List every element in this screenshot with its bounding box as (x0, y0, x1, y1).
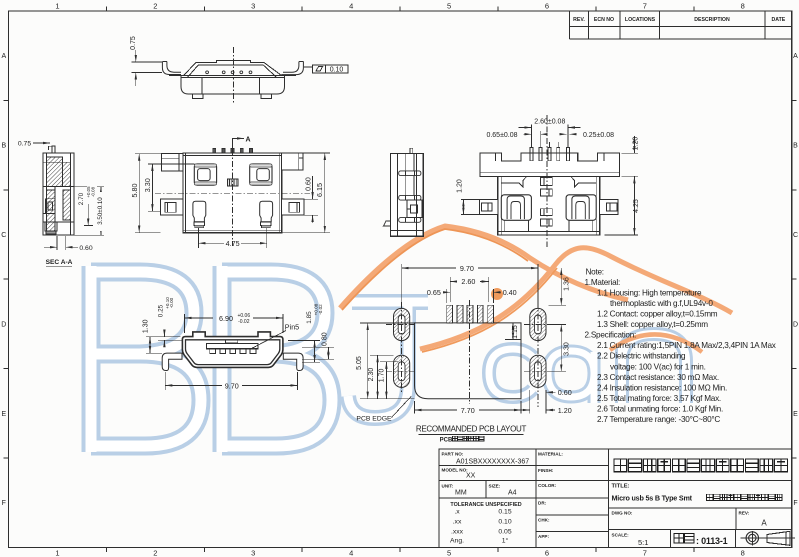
svg-text:FINSH:: FINSH: (538, 468, 554, 473)
svg-text:1.20: 1.20 (633, 137, 640, 151)
svg-text:A: A (245, 136, 250, 143)
svg-text:E: E (793, 411, 798, 418)
svg-text:1.Material:: 1.Material: (585, 278, 620, 287)
svg-text:CHK:: CHK: (538, 518, 550, 523)
svg-text:ECN NO: ECN NO (594, 17, 614, 23)
svg-text:DATE: DATE (772, 17, 786, 23)
svg-text:0.60: 0.60 (558, 388, 572, 397)
svg-text:8: 8 (741, 1, 745, 10)
svg-text:1.1 Housing: High temperatu: 1.1 Housing: High temperature (597, 288, 702, 297)
svg-text:0.25: 0.25 (157, 304, 164, 317)
svg-text:0.05: 0.05 (498, 529, 511, 536)
svg-text:6: 6 (545, 549, 549, 557)
svg-text:0.65±0.08: 0.65±0.08 (486, 132, 517, 139)
svg-text:RECOMMANDED PCB LAYOUT: RECOMMANDED PCB LAYOUT (416, 425, 527, 434)
svg-text:Note:: Note: (586, 267, 604, 276)
svg-text:0.75: 0.75 (18, 140, 31, 147)
svg-text:-0.08: -0.08 (90, 186, 95, 197)
svg-text:MODEL NO:: MODEL NO: (442, 468, 469, 473)
svg-text:voltage: 100 V(ac) for 1: voltage: 100 V(ac) for 1 min. (610, 362, 706, 371)
svg-text:7.70: 7.70 (461, 406, 475, 415)
svg-text:DESCRIPTION: DESCRIPTION (694, 17, 730, 23)
svg-text:DR:: DR: (538, 501, 547, 506)
svg-text:3: 3 (251, 549, 255, 557)
svg-text:6.90: 6.90 (219, 314, 233, 323)
svg-text:1.2 Contact: copper alloy,t: 1.2 Contact: copper alloy,t=0.15mm (597, 310, 718, 319)
svg-text:7: 7 (643, 1, 647, 10)
svg-text:2.6 Total unmating force:: 2.6 Total unmating force: 1.0 Kgf Min. (597, 404, 723, 413)
svg-text:5: 5 (447, 549, 451, 557)
svg-text:0.40: 0.40 (503, 288, 517, 297)
svg-text:A01SBXXXXXXXX-367: A01SBXXXXXXXX-367 (456, 458, 529, 465)
svg-text:B: B (793, 143, 798, 150)
svg-text:0.60: 0.60 (305, 177, 312, 191)
svg-text:A: A (1, 53, 6, 60)
svg-text:4.25: 4.25 (633, 199, 640, 213)
svg-text:: 0113-1: : 0113-1 (696, 536, 728, 546)
svg-text:2.4 Insulation resistance:: 2.4 Insulation resistance: 100 MΩ Min. (597, 383, 727, 392)
svg-text:9.70: 9.70 (460, 264, 474, 273)
svg-text:E: E (1, 411, 6, 418)
svg-text:2.7 Temperature range: -30°: 2.7 Temperature range: -30°C~80°C (597, 415, 720, 424)
svg-text:3.30: 3.30 (143, 178, 152, 192)
svg-text:TOLERANCE UNSPECIFIED: TOLERANCE UNSPECIFIED (450, 502, 521, 508)
svg-text:1°: 1° (502, 537, 509, 545)
svg-text:1.20: 1.20 (456, 179, 463, 193)
svg-text:.x: .x (454, 509, 460, 516)
svg-text:1.30: 1.30 (143, 319, 150, 333)
svg-text:SCALE:: SCALE: (612, 533, 630, 538)
svg-text:1.3 Shell: copper alloy,t=0: 1.3 Shell: copper alloy,t=0.25mm (597, 320, 708, 329)
svg-text:4: 4 (349, 549, 353, 557)
svg-text:D: D (1, 321, 6, 328)
svg-text:D: D (793, 321, 798, 328)
svg-text:REV.: REV. (573, 17, 585, 23)
svg-text:2.1 Current rating:1,5PIN 1: 2.1 Current rating:1,5PIN 1.8A Max/2,3,4… (597, 341, 776, 350)
svg-text:-0.02: -0.02 (318, 304, 323, 315)
svg-text:5.80: 5.80 (130, 184, 139, 198)
svg-text:1.20: 1.20 (558, 406, 572, 415)
svg-text:8: 8 (741, 549, 745, 557)
svg-text:3: 3 (251, 1, 255, 10)
svg-text:2.60±0.08: 2.60±0.08 (534, 118, 565, 125)
svg-text:Pin5: Pin5 (285, 322, 299, 331)
svg-text:5: 5 (447, 1, 451, 10)
svg-text:4.75: 4.75 (226, 239, 240, 248)
svg-text:1.85: 1.85 (306, 311, 313, 324)
svg-text:C: C (1, 232, 6, 239)
svg-text:PART NO:: PART NO: (442, 452, 464, 457)
svg-text:0.10: 0.10 (498, 519, 511, 526)
svg-text:C: C (793, 232, 798, 239)
svg-text:3.30: 3.30 (564, 342, 571, 356)
svg-text:1.70: 1.70 (379, 368, 386, 382)
svg-text:-0.02: -0.02 (238, 319, 250, 325)
svg-text:0.75: 0.75 (130, 36, 137, 50)
svg-text:B: B (1, 143, 6, 150)
svg-text:F: F (793, 500, 797, 507)
svg-text:APP:: APP: (538, 534, 549, 539)
svg-text:SIZE:: SIZE: (489, 484, 501, 489)
svg-text:0.60: 0.60 (79, 245, 92, 252)
svg-text:SEC A-A: SEC A-A (46, 259, 73, 266)
svg-text:2.5 Total mating force: 3.: 2.5 Total mating force: 3.57 Kgf Max. (597, 394, 721, 403)
svg-text:TITLE:: TITLE: (612, 484, 630, 490)
svg-text:A4: A4 (508, 490, 517, 497)
svg-text:1: 1 (55, 1, 59, 10)
svg-text:1.36: 1.36 (563, 277, 570, 291)
svg-text:1.15: 1.15 (512, 325, 519, 339)
svg-text:1: 1 (55, 549, 59, 557)
svg-text:2.70: 2.70 (78, 192, 85, 205)
svg-text:COLOR:: COLOR: (538, 483, 557, 488)
svg-text:-0.00: -0.00 (169, 297, 174, 308)
svg-text:XX: XX (466, 473, 476, 480)
svg-text:0.10: 0.10 (330, 66, 344, 73)
svg-text:Ang.: Ang. (450, 538, 464, 545)
svg-text:PCB EDGE: PCB EDGE (356, 416, 392, 423)
svg-text:2.60: 2.60 (461, 277, 475, 286)
svg-text:6: 6 (545, 1, 549, 10)
svg-text:6.15: 6.15 (315, 183, 324, 197)
svg-text:9.70: 9.70 (225, 381, 239, 390)
svg-text:.xx: .xx (453, 519, 462, 526)
svg-text:3.50±0.10: 3.50±0.10 (97, 197, 104, 225)
svg-text:REV:: REV: (739, 511, 750, 516)
svg-text:0.25±0.08: 0.25±0.08 (583, 132, 614, 139)
svg-text:2: 2 (153, 549, 157, 557)
svg-text:5:1: 5:1 (638, 538, 648, 547)
svg-text:A: A (761, 519, 767, 528)
svg-text:A: A (793, 53, 798, 60)
svg-text:2.30: 2.30 (368, 368, 375, 382)
svg-text:thermoplastic with g.f,UL94v: thermoplastic with g.f,UL94v-0 (610, 299, 713, 308)
svg-text:2: 2 (153, 1, 157, 10)
svg-text:0.15: 0.15 (498, 509, 511, 516)
svg-text:MM: MM (455, 490, 467, 497)
svg-text:4: 4 (349, 1, 353, 10)
svg-text:0.65: 0.65 (427, 288, 441, 297)
svg-text:PCB: PCB (440, 437, 453, 443)
svg-text:UNIT:: UNIT: (442, 484, 454, 489)
svg-text:0.80: 0.80 (321, 332, 328, 346)
svg-text:Micro usb 5s B Type Smt: Micro usb 5s B Type Smt (612, 494, 693, 503)
svg-text:2.3 Contact resistance: 30: 2.3 Contact resistance: 30 mΩ Max. (597, 373, 719, 382)
svg-text:.xxx: .xxx (451, 529, 464, 536)
svg-text:F: F (2, 500, 6, 507)
svg-text:DWG NO:: DWG NO: (612, 511, 633, 516)
svg-text:MATERIAL:: MATERIAL: (538, 452, 563, 457)
svg-text:LOCATIONS: LOCATIONS (625, 17, 656, 23)
svg-text:5.05: 5.05 (356, 356, 363, 370)
svg-text:2.2 Dielectric withstanding: 2.2 Dielectric withstanding (597, 352, 686, 361)
svg-text:2.Specification:: 2.Specification: (585, 331, 637, 340)
svg-text:7: 7 (643, 549, 647, 557)
